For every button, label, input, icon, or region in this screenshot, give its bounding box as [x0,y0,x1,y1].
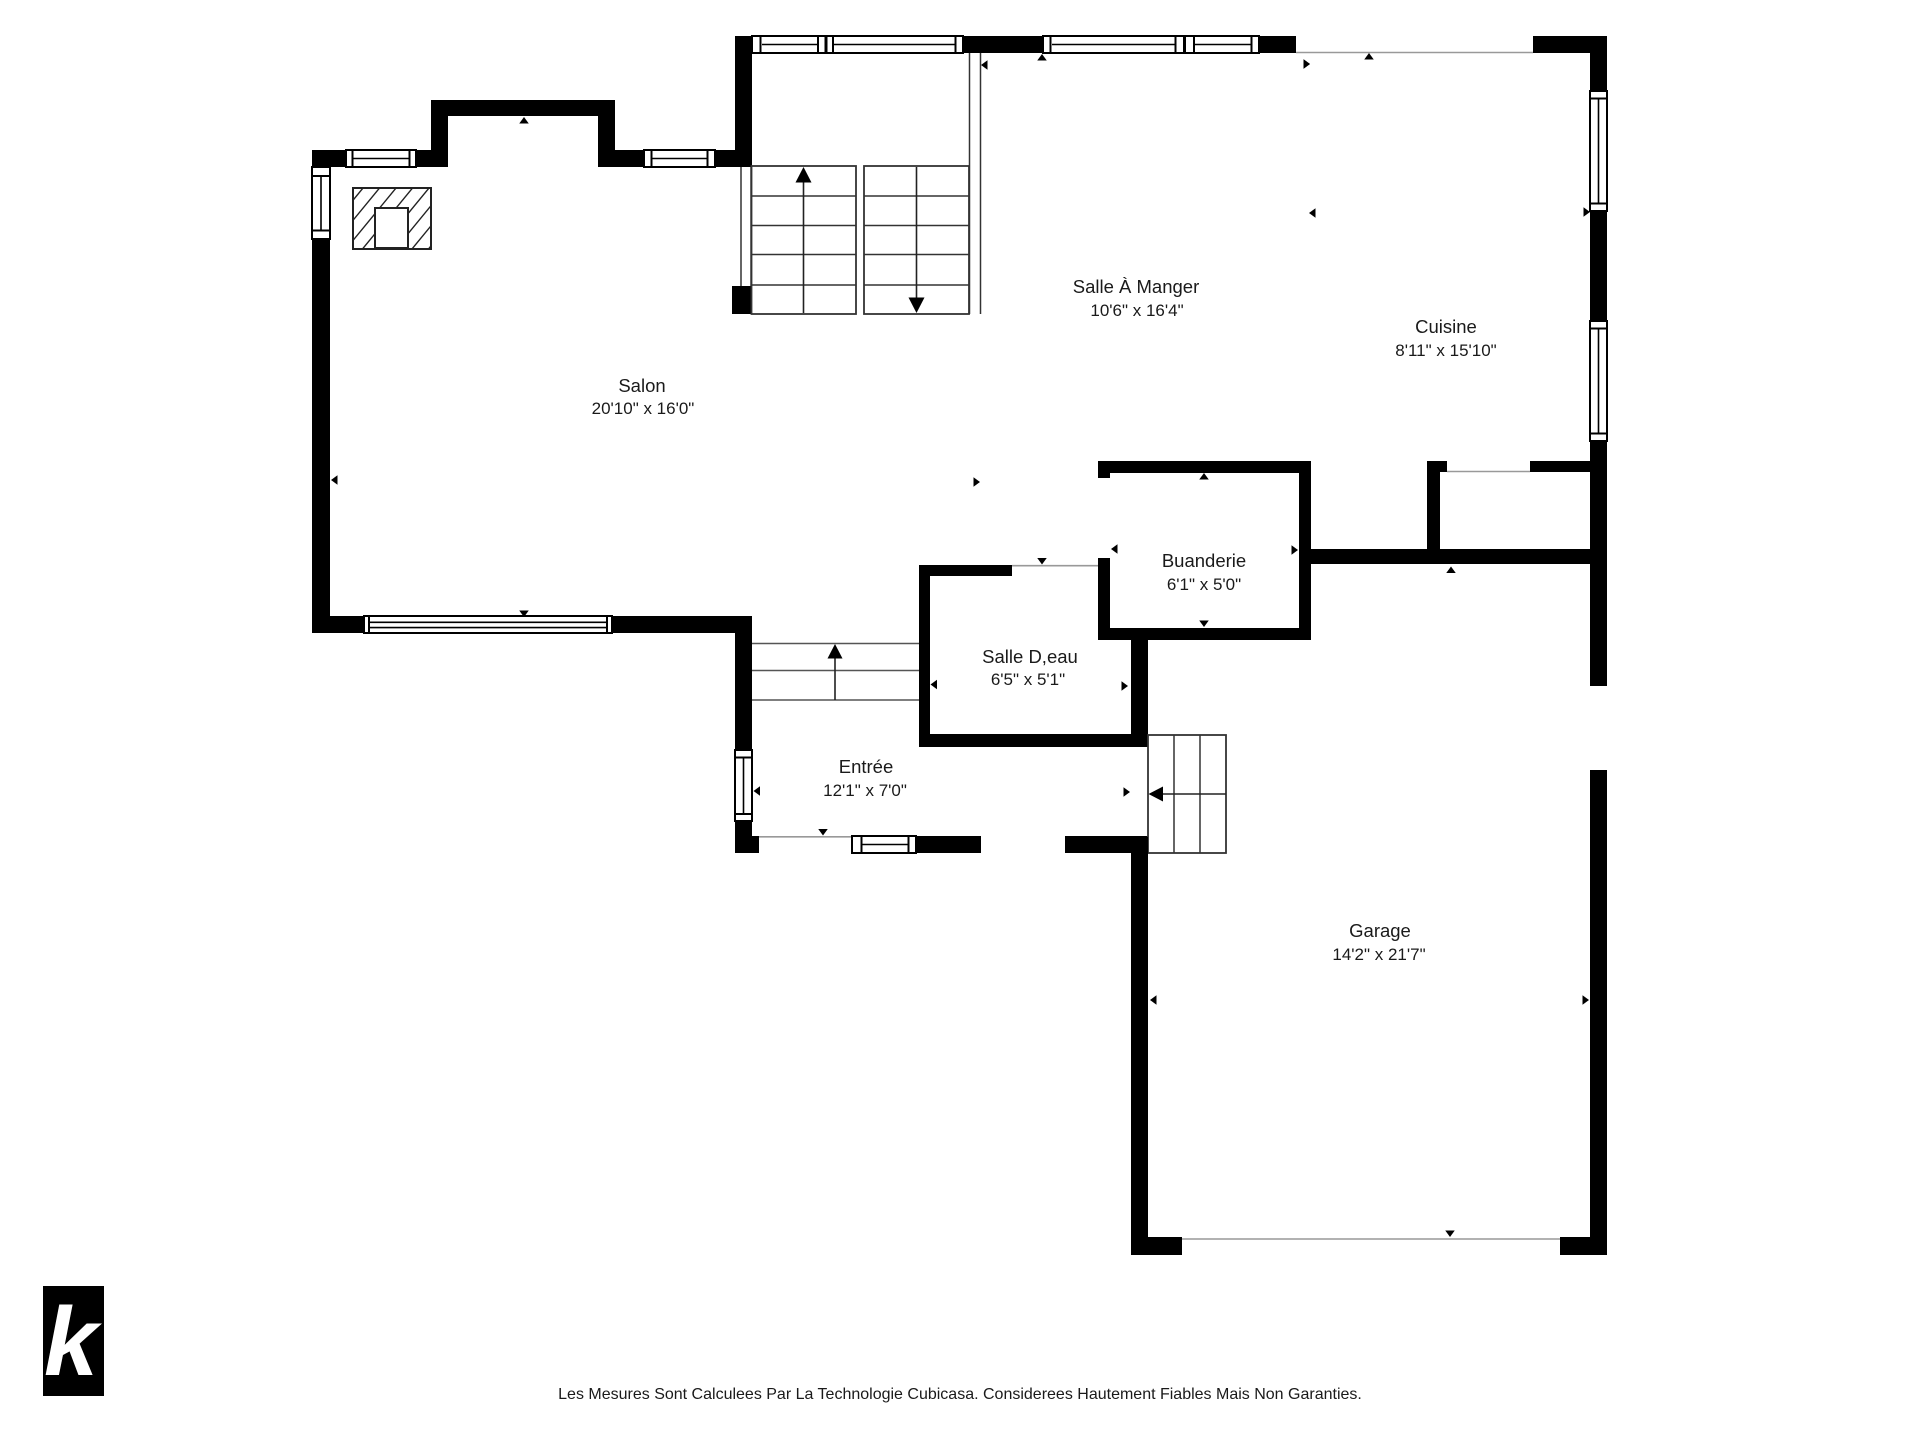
svg-text:6'1" x 5'0": 6'1" x 5'0" [1167,575,1241,594]
svg-text:k: k [44,1287,102,1396]
svg-text:20'10" x 16'0": 20'10" x 16'0" [592,399,695,418]
svg-text:Entrée: Entrée [839,756,894,777]
svg-text:8'11" x 15'10": 8'11" x 15'10" [1395,341,1496,360]
svg-text:12'1" x 7'0": 12'1" x 7'0" [823,781,907,800]
svg-text:Buanderie: Buanderie [1162,550,1246,571]
svg-text:Salon: Salon [618,375,665,396]
svg-text:14'2" x 21'7": 14'2" x 21'7" [1332,945,1425,964]
svg-text:10'6" x 16'4": 10'6" x 16'4" [1090,301,1183,320]
svg-text:Les Mesures Sont Calculees Par: Les Mesures Sont Calculees Par La Techno… [558,1386,1362,1403]
svg-text:Garage: Garage [1349,920,1411,941]
svg-text:Cuisine: Cuisine [1415,316,1477,337]
svg-text:Salle D,eau: Salle D,eau [982,646,1078,667]
svg-text:6'5" x 5'1": 6'5" x 5'1" [991,670,1065,689]
svg-text:Salle À Manger: Salle À Manger [1073,276,1199,297]
